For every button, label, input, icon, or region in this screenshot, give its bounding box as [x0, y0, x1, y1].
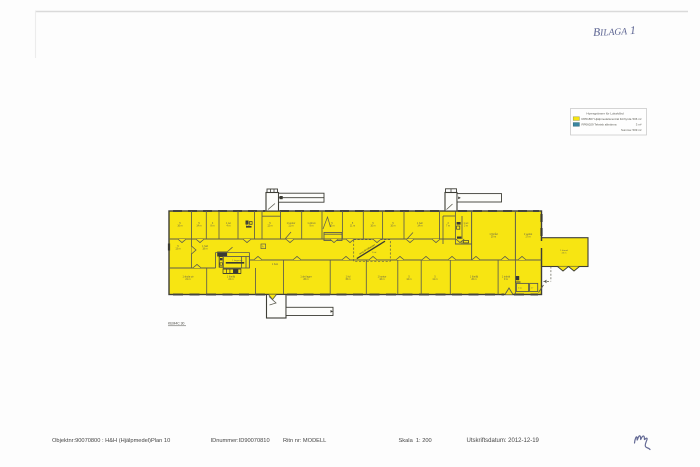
- svg-text:24 m: 24 m: [228, 278, 233, 281]
- svg-text:1 frd: 1 frd: [372, 251, 377, 254]
- svg-text:BILAGA 1: BILAGA 1: [593, 24, 636, 39]
- svg-text:6 m: 6 m: [246, 225, 250, 228]
- svg-text:KEM4C 30: KEM4C 30: [168, 322, 185, 326]
- svg-text:1 wc: 1 wc: [518, 288, 522, 290]
- svg-text:11 m: 11 m: [288, 225, 293, 228]
- svg-text:17 m: 17 m: [525, 236, 530, 239]
- svg-text:14 m: 14 m: [196, 225, 201, 228]
- svg-text:3 m: 3 m: [464, 225, 468, 228]
- svg-text:RP01867 Hjälpmedelscentral Fö: RP01867 Hjälpmedelscentral Förhyrda: [582, 117, 632, 121]
- svg-text:23 m: 23 m: [562, 253, 567, 255]
- svg-text:13 m: 13 m: [175, 248, 180, 251]
- svg-text:IDnummer:ID90070810: IDnummer:ID90070810: [211, 438, 270, 444]
- svg-text:10 m: 10 m: [329, 225, 334, 228]
- svg-text:Skala 1: 200: Skala 1: 200: [399, 438, 432, 444]
- svg-text:10 m: 10 m: [390, 225, 395, 228]
- svg-text:15 m: 15 m: [345, 278, 350, 281]
- svg-text:14 m: 14 m: [417, 225, 422, 228]
- svg-text:9 m: 9 m: [504, 278, 508, 281]
- svg-text:20 m: 20 m: [471, 278, 476, 281]
- svg-text:16 m: 16 m: [177, 225, 182, 228]
- svg-text:26 m: 26 m: [303, 278, 308, 281]
- svg-text:Ritn nr: MODELL: Ritn nr: MODELL: [283, 438, 326, 444]
- svg-text:1 hwc: 1 hwc: [272, 263, 279, 266]
- svg-text:12 m: 12 m: [406, 278, 411, 281]
- svg-text:21 m: 21 m: [185, 278, 190, 281]
- svg-text:29 m: 29 m: [491, 236, 496, 239]
- svg-text:506 m²: 506 m²: [633, 117, 642, 121]
- svg-text:12 m: 12 m: [267, 225, 272, 228]
- svg-text:9 m: 9 m: [310, 225, 314, 228]
- svg-text:Objektnr:90070800 : H&H (Hjäl: Objektnr:90070800 : H&H (Hjälpmedel)Plan…: [52, 438, 170, 444]
- svg-text:8 m: 8 m: [211, 225, 215, 228]
- svg-text:Hyresgränser för Lokalvård: Hyresgränser för Lokalvård: [586, 111, 624, 115]
- svg-text:RP06029 Teknisk allmänna: RP06029 Teknisk allmänna: [582, 123, 617, 127]
- svg-text:1 kapprum: 1 kapprum: [232, 259, 243, 262]
- svg-text:16 m: 16 m: [379, 278, 384, 281]
- svg-text:11 m: 11 m: [350, 225, 355, 228]
- svg-text:11 m: 11 m: [432, 278, 437, 281]
- svg-text:1 förråd: 1 förråd: [560, 249, 568, 252]
- svg-text:18 m: 18 m: [202, 248, 207, 251]
- svg-text:3 m²: 3 m²: [636, 123, 642, 127]
- svg-text:Summa: 509 m²: Summa: 509 m²: [621, 128, 642, 132]
- svg-text:4 m: 4 m: [227, 225, 231, 228]
- svg-text:7 m: 7 m: [446, 225, 450, 228]
- svg-text:Utskriftsdatum: 2012-12-19: Utskriftsdatum: 2012-12-19: [467, 438, 540, 444]
- svg-text:10 m: 10 m: [370, 225, 375, 228]
